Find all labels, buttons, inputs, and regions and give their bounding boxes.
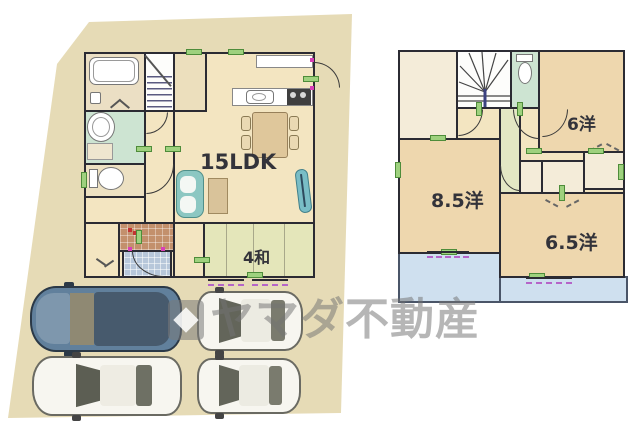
window-marker [186,49,202,55]
car-compact-white-2 [197,358,301,414]
door-marker [136,146,152,152]
laundry-pan-icon [87,143,113,160]
hinge-dot [310,86,314,90]
sofa-cushion [180,176,196,193]
sofa-cushion [180,196,196,213]
burner-icon [300,92,306,98]
car-mirror [72,352,81,358]
window-marker [228,49,244,55]
window-marker [303,76,319,82]
tatami-label: 4和 [243,244,270,268]
genkan-entry-tile [118,222,175,252]
toilet-tank-icon [89,169,98,188]
floorplan-canvas: 15LDK 4和 [0,0,640,434]
room65-label: 6.5洋 [545,228,598,255]
car-mirror [215,354,224,360]
room6-label: 6洋 [567,110,596,135]
car-roof [100,365,136,406]
car-mirror [215,287,224,293]
bathtub-inner [93,60,135,82]
room85-label: 8.5洋 [431,186,484,213]
window-marker [588,148,604,154]
car-hood [36,293,70,344]
door-marker [165,146,181,152]
car-windshield [219,364,239,407]
car-windshield [70,293,94,345]
wash-basin-inner [92,117,110,137]
chair-icon [241,116,251,131]
door-marker [559,185,565,201]
toilet-icon [98,167,124,190]
hinge-dot [161,247,165,251]
faucet-icon [90,92,101,104]
door-marker [430,135,446,141]
car-windshield [76,363,100,408]
sink-bowl [252,93,266,101]
tatami-divider [226,224,227,276]
window-marker [618,164,624,180]
window-marker [395,162,401,178]
stairs-second-floor [456,50,512,109]
window-marker [247,272,263,278]
door-marker [517,102,523,116]
toilet-icon [518,62,532,84]
sliding-window-marker [208,279,244,286]
sliding-window-marker [252,279,288,286]
room-hall-2f [398,50,458,140]
room-storage [173,52,207,112]
entry-mark-icon [128,228,132,232]
car-mirror [72,415,81,421]
ldk-label: 15LDK [200,150,276,174]
room-6yo [538,50,625,153]
hinge-dot [128,247,132,251]
chair-icon [289,116,299,131]
room-entry-side [84,222,120,278]
coffee-table [208,178,228,214]
car-cabin [94,292,170,346]
chair-icon [241,135,251,150]
closet-small-2f [519,160,543,194]
door-marker [194,257,210,263]
kitchen-counter [256,55,313,68]
car-rear-window [269,366,282,405]
closet-tatami [173,222,205,278]
tatami-divider [284,224,285,276]
toilet-tank-icon [516,54,533,62]
hinge-dot [310,58,314,62]
watermark-text: ヤマダ不動産 [210,298,480,342]
car-roof [239,365,269,406]
car-mirror [215,413,224,419]
stair-fan-icon [458,52,510,107]
sliding-window-marker [526,277,572,284]
window-marker [526,148,542,154]
watermark: ヤマダ不動産 [168,298,480,342]
burner-icon [290,92,296,98]
door-marker [136,230,142,244]
car-suv-dark [30,286,182,352]
chair-icon [289,135,299,150]
car-rear-window [136,365,152,406]
window-marker [81,172,87,188]
door-marker [476,102,482,116]
sliding-window-marker [427,251,469,258]
closet-southwest [84,196,146,224]
car-sedan-white [32,356,182,416]
car-mirror [64,282,74,288]
watermark-logo-icon [168,300,204,340]
